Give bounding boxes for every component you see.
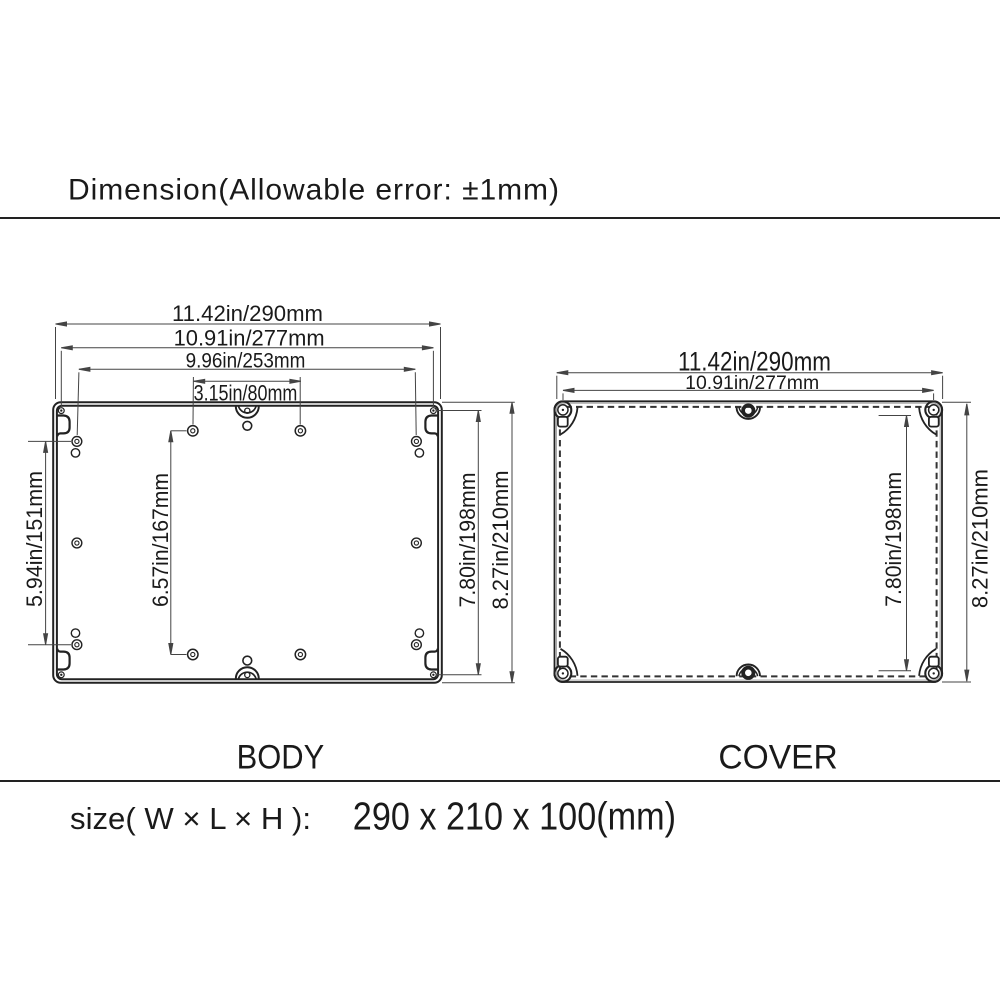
svg-text:size( W × L × H ):: size( W × L × H ):: [70, 801, 311, 836]
svg-text:Dimension(Allowable error: ±1m: Dimension(Allowable error: ±1mm): [68, 174, 559, 207]
svg-text:9.96in/253mm: 9.96in/253mm: [186, 348, 306, 372]
svg-text:8.27in/210mm: 8.27in/210mm: [488, 471, 513, 610]
svg-text:11.42in/290mm: 11.42in/290mm: [172, 301, 323, 326]
svg-text:7.80in/198mm: 7.80in/198mm: [455, 473, 480, 608]
svg-text:7.80in/198mm: 7.80in/198mm: [881, 472, 906, 607]
svg-text:10.91in/277mm: 10.91in/277mm: [685, 373, 819, 394]
svg-text:8.27in/210mm: 8.27in/210mm: [968, 469, 993, 608]
svg-text:BODY: BODY: [237, 738, 325, 776]
svg-text:COVER: COVER: [718, 738, 837, 776]
svg-text:3.15in/80mm: 3.15in/80mm: [194, 381, 298, 406]
svg-text:290 x 210 x 100(mm): 290 x 210 x 100(mm): [353, 796, 676, 839]
svg-text:5.94in/151mm: 5.94in/151mm: [22, 471, 47, 607]
svg-text:10.91in/277mm: 10.91in/277mm: [174, 326, 325, 351]
svg-text:6.57in/167mm: 6.57in/167mm: [148, 473, 173, 607]
